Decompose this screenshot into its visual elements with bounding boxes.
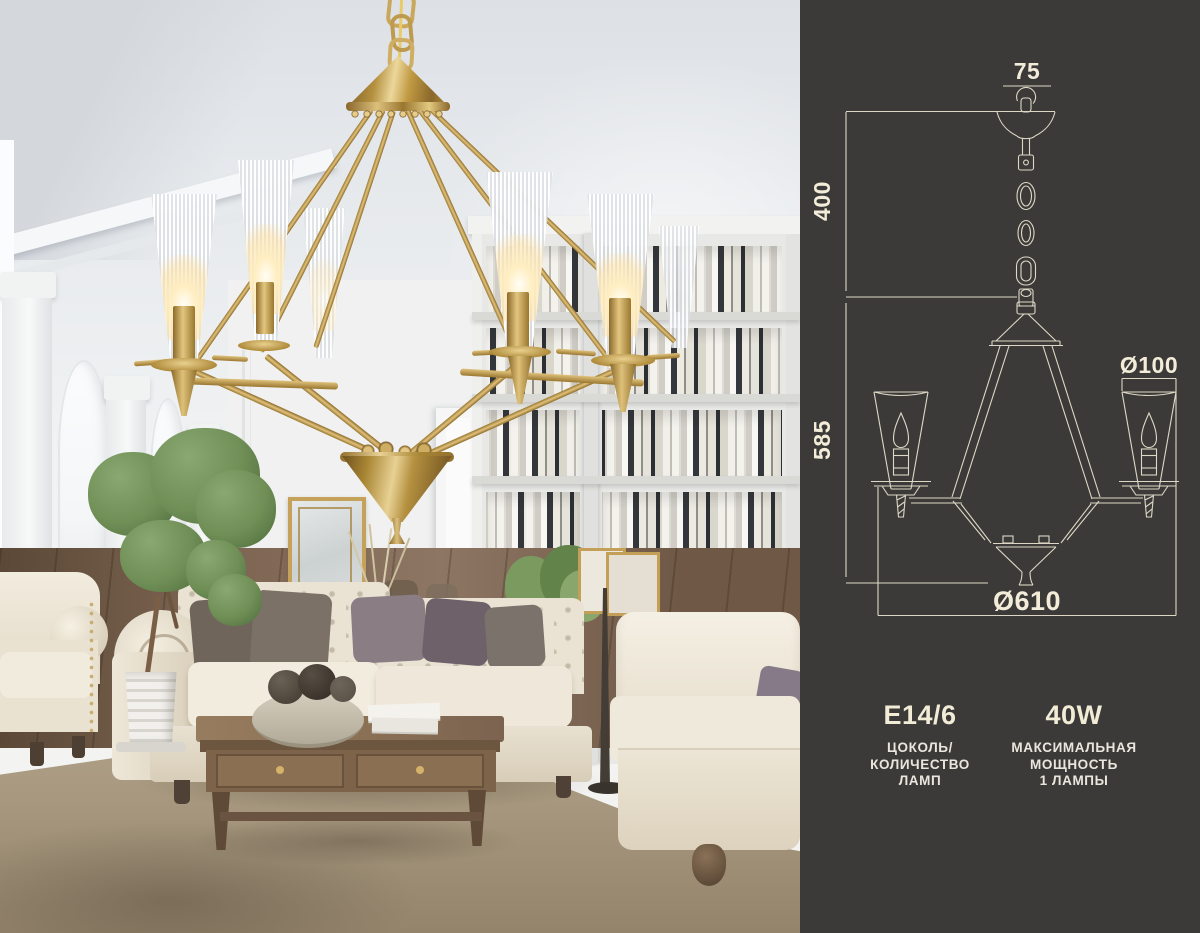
spec-label-line: МОЩНОСТЬ	[974, 757, 1174, 774]
lifestyle-photo	[0, 0, 800, 933]
spec-panel: 75 400 585 Ø100 Ø610 E14/6 ЦОКОЛЬ/ КОЛИЧ…	[800, 0, 1200, 933]
sofa-pillow	[421, 597, 492, 667]
table-stretcher	[220, 812, 482, 821]
dim-shade-diameter: Ø100	[1120, 352, 1178, 378]
dimension-diagram: 75 400 585 Ø100 Ø610	[800, 0, 1200, 933]
spec-power-value: 40W	[974, 700, 1174, 731]
sofa-leg	[174, 780, 190, 804]
candle-socket	[609, 298, 631, 360]
armchair-leg	[72, 736, 85, 758]
spec-power-label: МАКСИМАЛЬНАЯ МОЩНОСТЬ 1 ЛАМПЫ	[974, 740, 1174, 790]
mirror-inner-frame	[298, 507, 352, 592]
dim-overall-diameter: Ø610	[993, 586, 1061, 616]
sofa-pillow	[484, 604, 546, 670]
plant-foliage	[208, 574, 262, 626]
pilaster	[2, 298, 52, 590]
table-shadow	[190, 816, 520, 866]
dim-suspension-length: 400	[809, 181, 835, 221]
decor-books	[372, 717, 438, 732]
sofa-pillow	[350, 594, 427, 664]
product-card: 75 400 585 Ø100 Ø610 E14/6 ЦОКОЛЬ/ КОЛИЧ…	[0, 0, 1200, 933]
armchair-seat	[0, 652, 92, 698]
top-cone-beads	[350, 109, 446, 119]
drawer-knob	[276, 766, 284, 774]
plant-foliage	[196, 470, 276, 548]
bobeche	[151, 358, 217, 372]
planter-saucer	[116, 742, 186, 752]
candle-socket	[256, 282, 274, 334]
candle-socket	[507, 292, 529, 354]
spec-max-power: 40W МАКСИМАЛЬНАЯ МОЩНОСТЬ 1 ЛАМПЫ	[974, 700, 1174, 790]
spec-label-line: 1 ЛАМПЫ	[974, 773, 1174, 790]
accent-chair-leg	[692, 844, 726, 886]
gold-frame	[606, 552, 660, 616]
accent-chair-base	[618, 748, 800, 850]
dim-hook-width: 75	[1014, 58, 1041, 84]
pilaster-capital	[104, 376, 150, 400]
armchair-nailhead-trim	[88, 600, 96, 732]
sofa-leg	[556, 776, 571, 798]
dim-body-height: 585	[809, 420, 835, 460]
spec-label-line: МАКСИМАЛЬНАЯ	[974, 740, 1174, 757]
book-row	[602, 410, 782, 476]
bobeche-spoke	[212, 355, 248, 362]
pilaster-capital	[0, 272, 56, 298]
bobeche	[238, 340, 290, 351]
shelf-board	[472, 476, 800, 484]
decor-sphere	[330, 676, 356, 702]
drawer-knob	[416, 766, 424, 774]
armchair-leg	[30, 742, 44, 766]
planter-pot	[122, 672, 180, 746]
